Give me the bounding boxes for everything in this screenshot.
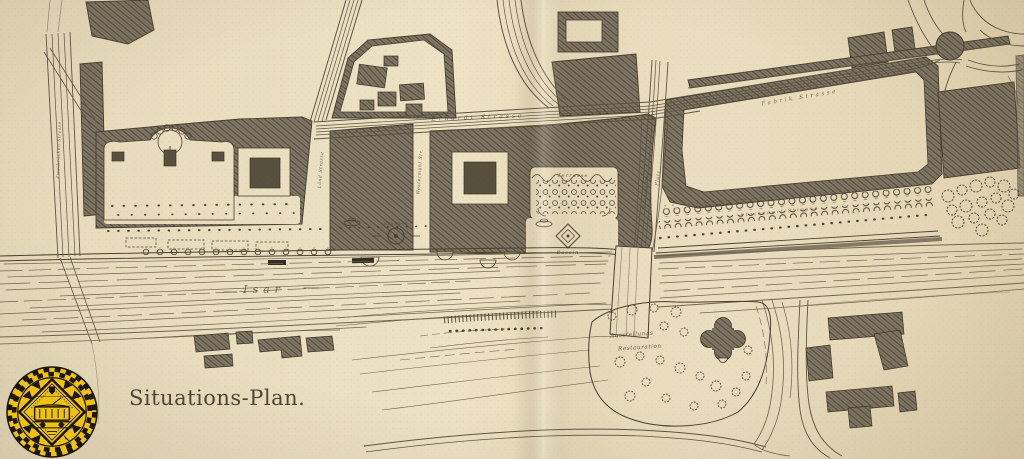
scanned-map-page: Isar Terrasse Bassin Brunnen Ausstellung… (0, 0, 1024, 459)
brunnen-label: Brunnen (383, 222, 409, 227)
river-label: Isar (242, 283, 285, 296)
tram-museum-seal-logo (6, 366, 98, 458)
roundabout-island (936, 32, 964, 60)
map-caption: Situations-Plan. (129, 386, 305, 410)
bassin-label: Bassin (556, 250, 580, 256)
terrasse-label: Terrasse (557, 173, 588, 179)
